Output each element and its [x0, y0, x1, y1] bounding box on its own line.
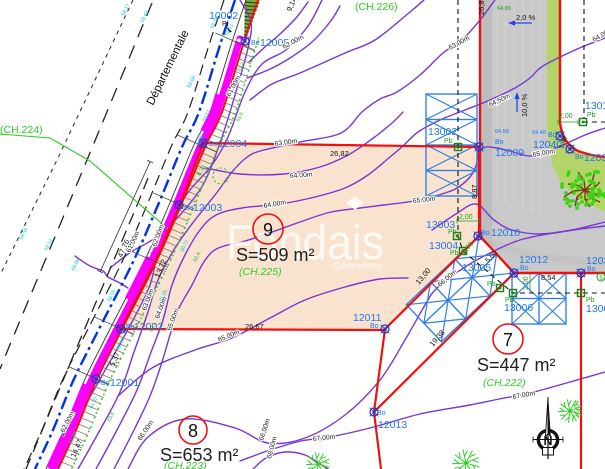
svg-text:12010: 12010	[491, 227, 520, 239]
svg-text:12003: 12003	[193, 202, 222, 214]
svg-text:Bo: Bo	[251, 40, 260, 47]
svg-text:(CH.222): (CH.222)	[483, 377, 526, 389]
svg-text:N: N	[543, 434, 552, 448]
svg-text:Bo: Bo	[495, 139, 504, 146]
svg-text:26,82: 26,82	[330, 149, 349, 158]
svg-text:12013: 12013	[378, 419, 407, 431]
svg-text:2,00: 2,00	[559, 113, 573, 120]
svg-text:Bo: Bo	[548, 132, 557, 139]
svg-text:8,54: 8,54	[541, 273, 556, 282]
svg-text:(CH.226): (CH.226)	[355, 1, 398, 13]
svg-text:64.48: 64.48	[532, 130, 546, 136]
svg-text:S=447 m²: S=447 m²	[477, 355, 556, 375]
svg-text:Pb: Pb	[487, 281, 496, 288]
svg-text:7: 7	[503, 330, 513, 350]
svg-text:Bo: Bo	[370, 323, 379, 330]
svg-text:S=509 m²: S=509 m²	[236, 245, 315, 265]
svg-text:13002: 13002	[428, 126, 457, 138]
svg-text:26,67: 26,67	[245, 322, 264, 331]
svg-text:8: 8	[188, 421, 198, 441]
svg-text:Bo: Bo	[377, 410, 386, 417]
svg-text:Pb: Pb	[448, 229, 457, 236]
svg-text:12004: 12004	[218, 138, 247, 150]
svg-text:5: 5	[599, 275, 603, 282]
svg-text:(CH.225): (CH.225)	[239, 266, 282, 278]
svg-text:1300: 1300	[586, 303, 605, 315]
svg-text:12039: 12039	[584, 152, 605, 164]
svg-text:2,0 %: 2,0 %	[516, 13, 536, 22]
svg-text:(CH.224): (CH.224)	[0, 124, 43, 136]
svg-text:10,0 %: 10,0 %	[520, 93, 529, 117]
svg-text:Pb: Pb	[450, 250, 459, 257]
svg-text:Pb: Pb	[505, 297, 514, 304]
svg-text:(CH.223): (CH.223)	[164, 460, 207, 469]
svg-text:Bo: Bo	[575, 154, 584, 161]
svg-text:Bo: Bo	[481, 230, 490, 237]
svg-text:Bo: Bo	[101, 380, 110, 387]
svg-text:Pb: Pb	[587, 112, 596, 119]
svg-text:8,87: 8,87	[470, 184, 479, 199]
svg-text:2,00: 2,00	[459, 214, 473, 221]
svg-text:Bo: Bo	[520, 265, 529, 272]
svg-text:64.58: 64.58	[495, 129, 509, 135]
svg-text:64.86: 64.86	[497, 6, 511, 12]
svg-text:13005: 13005	[462, 262, 491, 274]
svg-text:Bo: Bo	[587, 266, 596, 273]
svg-text:Pb: Pb	[586, 297, 595, 304]
svg-text:12009: 12009	[495, 147, 524, 159]
svg-text:Géomètres: Géomètres	[333, 261, 382, 272]
svg-text:9: 9	[263, 220, 273, 240]
svg-text:26,87: 26,87	[477, 0, 486, 15]
svg-text:Pb: Pb	[444, 138, 453, 145]
svg-text:2,00: 2,00	[523, 276, 530, 290]
svg-text:Bo: Bo	[209, 141, 218, 148]
svg-text:12001: 12001	[110, 377, 139, 389]
svg-text:1301: 1301	[585, 100, 605, 112]
